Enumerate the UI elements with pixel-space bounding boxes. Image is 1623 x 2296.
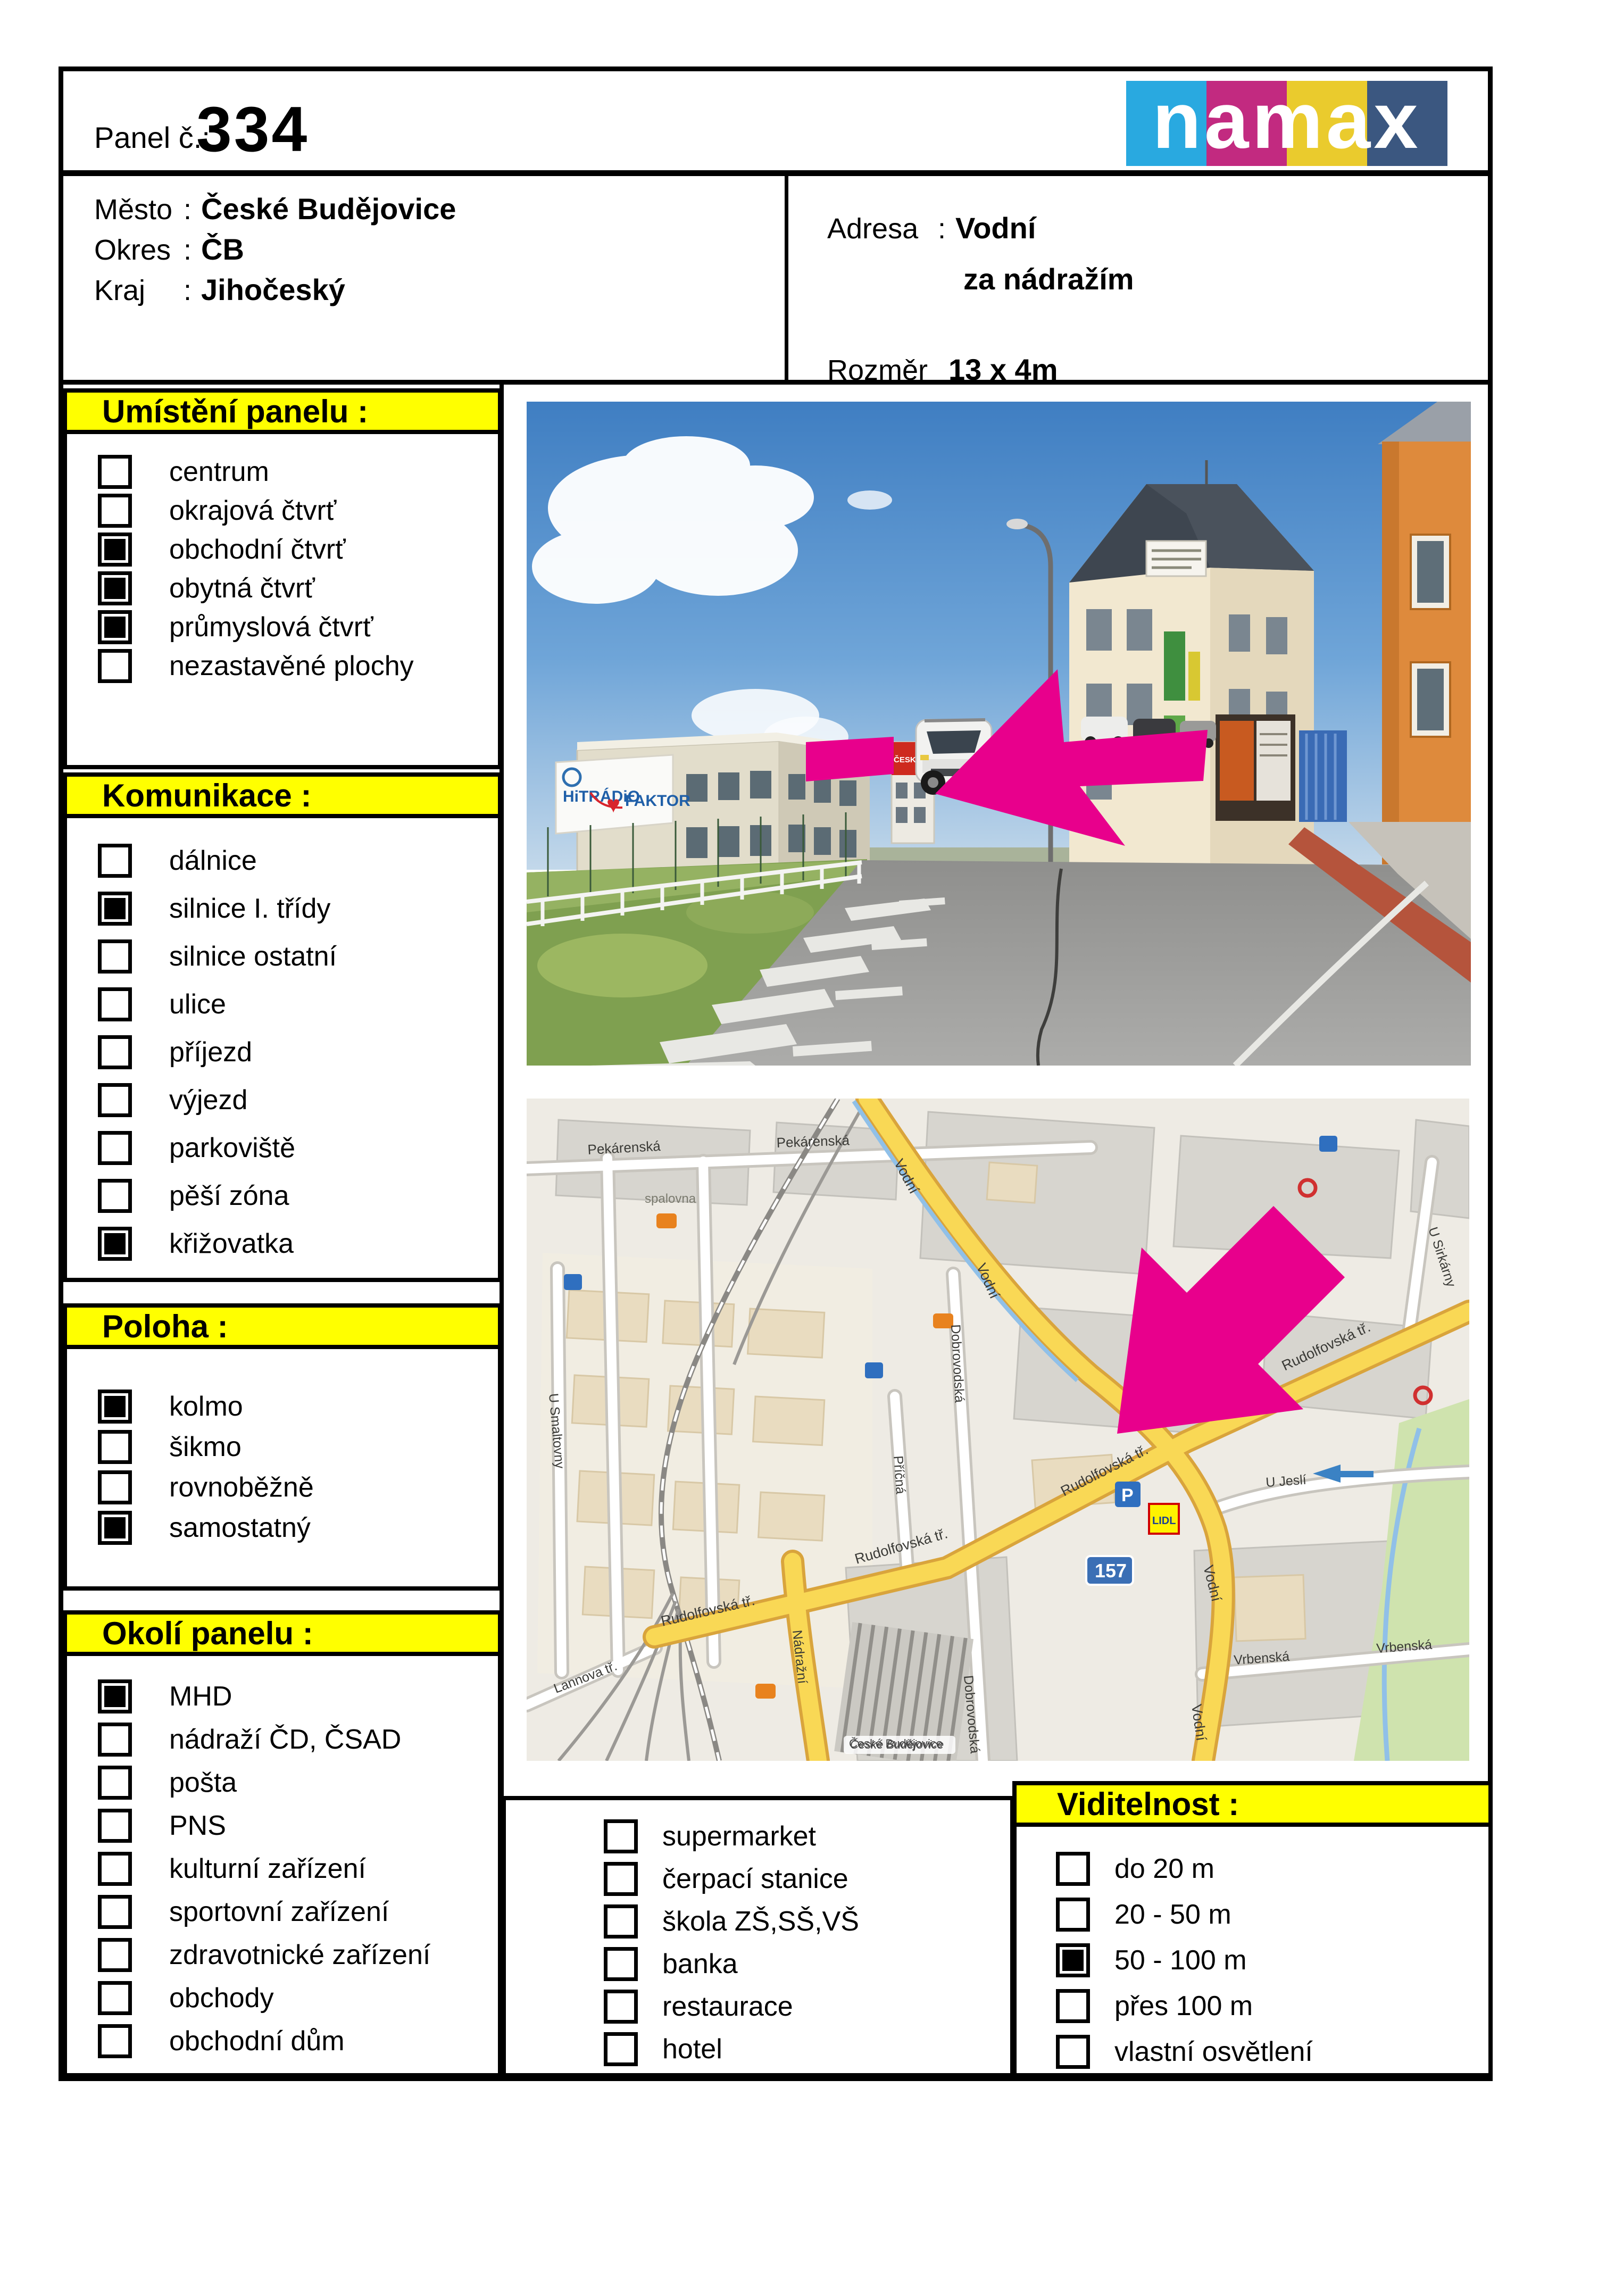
checkbox-label: vlastní osvětlení [1114,2036,1313,2068]
checkbox[interactable] [98,1035,132,1069]
sluzby-list: supermarket čerpací stanice škola ZŠ,SŠ,… [506,1800,1010,2070]
colon: : [938,212,946,245]
checkbox-label: obchody [169,1982,274,2014]
checkbox-row: banka [506,1943,1010,1985]
checkbox[interactable] [98,1895,132,1929]
checkbox-row: silnice I. třídy [67,885,498,933]
checkbox-label: výjezd [169,1084,247,1116]
photo-blue-gate [1299,730,1347,822]
district-row: Okres : ČB [94,232,244,267]
parking-icon-text: P [1121,1485,1134,1505]
address-line1: Vodní [955,211,1036,245]
city-value: České Budějovice [201,192,456,226]
section-komunikace: Komunikace : dálnice silnice I. třídy [63,772,502,1282]
street-lamp-head [1006,519,1028,529]
region-row: Kraj : Jihočeský [94,272,345,307]
checkbox-row: supermarket [506,1815,1010,1858]
checkbox-label: nezastavěné plochy [169,650,414,682]
checkbox-label: silnice I. třídy [169,893,330,925]
checkbox-row: silnice ostatní [67,933,498,980]
house-yellow-banner [1188,652,1200,701]
billboard-highlight [806,737,894,781]
info-divider [63,380,1488,385]
checkbox-label: centrum [169,456,269,488]
checkbox[interactable] [604,1904,638,1939]
checkbox[interactable] [1056,1898,1090,1932]
checkbox-row: 50 - 100 m [1017,1937,1488,1983]
checkbox[interactable] [604,1819,638,1853]
checkbox-row: kolmo [67,1386,498,1427]
checkbox[interactable] [98,844,132,878]
logo-wordmark: namax [1126,80,1447,160]
colon: : [184,274,192,307]
checkbox-label: PNS [169,1810,226,1842]
checkbox-row: kulturní zařízení [67,1847,498,1890]
checkbox-label: dálnice [169,845,257,877]
city-label: Město [94,193,174,226]
checkbox[interactable] [604,1990,638,2024]
checkbox[interactable] [604,1947,638,1981]
checkbox[interactable] [98,1227,132,1261]
map-street-label: spalovna [645,1192,696,1206]
checkbox-row: výjezd [67,1076,498,1124]
checkbox-label: parkoviště [169,1132,295,1164]
checkbox-label: restaurace [662,1991,793,2023]
checkbox-label: sportovní zařízení [169,1896,389,1928]
checkbox-label: hotel [662,2033,722,2065]
checkbox-row: čerpací stanice [506,1858,1010,1900]
region-value: Jihočeský [201,272,345,307]
checkbox-row: restaurace [506,1985,1010,2028]
checkbox[interactable] [98,1809,132,1843]
panel-datasheet: Panel č.: 334 namax Město : České Budějo… [59,66,1493,2081]
checkbox[interactable] [98,2024,132,2058]
checkbox[interactable] [98,1390,132,1424]
poloha-list: kolmo šikmo rovnoběžně samostatn [67,1349,498,1548]
radio-billboard: HiTRÁDiO ♥ FAKTOR [556,755,690,834]
checkbox-label: čerpací stanice [662,1863,848,1895]
section-poloha-title: Poloha : [67,1308,498,1349]
city-row: Město : České Budějovice [94,192,456,226]
checkbox-label: příjezd [169,1036,252,1068]
checkbox-label: ulice [169,988,226,1020]
checkbox[interactable] [98,610,132,644]
checkbox-row: MHD [67,1675,498,1718]
checkbox[interactable] [604,2032,638,2066]
checkbox[interactable] [98,1511,132,1545]
region-label: Kraj [94,274,174,307]
panel-number-value: 334 [196,93,309,166]
checkbox-row: okrajová čtvrť [67,491,498,530]
checkbox-row: nádraží ČD, ČSAD [67,1718,498,1761]
checkbox-label: obchodní dům [169,2025,345,2057]
checkbox-row: šikmo [67,1427,498,1467]
checkbox[interactable] [98,455,132,489]
section-umisteni: Umístění panelu : centrum okrajová čtvrť [63,388,502,769]
komunikace-list: dálnice silnice I. třídy silnice ostatní [67,818,498,1268]
colon: : [184,234,192,267]
scanned-form: Panel č.: 334 namax Město : České Budějo… [0,0,1623,2296]
checkbox[interactable] [98,1723,132,1757]
checkbox-row: parkoviště [67,1124,498,1172]
checkbox-label: nádraží ČD, ČSAD [169,1724,401,1756]
checkbox-label: 50 - 100 m [1114,1944,1247,1976]
checkbox-label: škola ZŠ,SŠ,VŠ [662,1906,859,1937]
checkbox-label: kolmo [169,1391,243,1422]
checkbox-row: obchodní čtvrť [67,530,498,569]
checkbox[interactable] [98,1679,132,1713]
checkbox-label: banka [662,1948,738,1980]
checkbox[interactable] [1056,1989,1090,2023]
checkbox-row: PNS [67,1804,498,1847]
checkbox-row: sportovní zařízení [67,1890,498,1933]
checkbox[interactable] [604,1862,638,1896]
checkbox[interactable] [1056,1943,1090,1977]
map-street-label: Příčná [890,1455,908,1494]
checkbox-label: supermarket [662,1820,816,1852]
checkbox-row: nezastavěné plochy [67,646,498,685]
checkbox-row: 20 - 50 m [1017,1892,1488,1937]
checkbox[interactable] [98,1766,132,1800]
house-green-banner [1164,631,1185,701]
route-shield-text: 157 [1095,1560,1127,1582]
checkbox-label: pěší zóna [169,1180,289,1212]
checkbox-row: ulice [67,980,498,1028]
checkbox-row: do 20 m [1017,1846,1488,1892]
checkbox[interactable] [98,939,132,974]
district-label: Okres [94,234,174,267]
checkbox-row: křižovatka [67,1220,498,1268]
station-label: České Budějovice [850,1738,944,1751]
checkbox-label: pošta [169,1767,237,1799]
checkbox-label: přes 100 m [1114,1990,1253,2022]
section-poloha: Poloha : kolmo šikmo rovnoběž [63,1303,502,1591]
checkbox-label: samostatný [169,1512,311,1544]
header-divider [63,170,1488,176]
checkbox[interactable] [98,987,132,1021]
address-line2: za nádražím [963,262,1134,296]
checkbox-row: přes 100 m [1017,1983,1488,2029]
district-value: ČB [201,232,244,267]
section-sluzby: supermarket čerpací stanice škola ZŠ,SŠ,… [502,1796,1014,2077]
location-map: 157 P LIDL [527,1099,1469,1761]
checkbox[interactable] [98,1470,132,1504]
checkbox-label: průmyslová čtvrť [169,611,373,643]
checkbox-row: pěší zóna [67,1172,498,1220]
map-parking-icon: P [1115,1482,1141,1507]
map-street-label: Pekárenská [776,1132,850,1151]
checkbox-row: škola ZŠ,SŠ,VŠ [506,1900,1010,1943]
checkbox[interactable] [98,1083,132,1117]
checkbox[interactable] [98,649,132,683]
okoli-list: MHD nádraží ČD, ČSAD pošta PNS [67,1656,498,2062]
checkbox-label: obytná čtvrť [169,572,315,604]
checkbox-label: rovnoběžně [169,1471,314,1503]
checkbox-row: obchody [67,1976,498,2019]
address-label: Adresa [827,212,928,245]
section-viditelnost: Viditelnost : do 20 m 20 - 50 m [1012,1781,1493,2077]
checkbox-row: zdravotnické zařízení [67,1933,498,1976]
section-komunikace-title: Komunikace : [67,777,498,818]
section-okoli-title: Okolí panelu : [67,1615,498,1656]
checkbox-label: silnice ostatní [169,941,337,972]
viditelnost-list: do 20 m 20 - 50 m 50 - 100 m pře [1017,1827,1488,2075]
map-route-shield: 157 [1086,1556,1133,1585]
checkbox-row: dálnice [67,837,498,885]
checkbox-row: hotel [506,2028,1010,2070]
checkbox-label: kulturní zařízení [169,1853,366,1885]
checkbox-row: příjezd [67,1028,498,1076]
checkbox-row: průmyslová čtvrť [67,608,498,646]
checkbox[interactable] [1056,1852,1090,1886]
checkbox[interactable] [98,1131,132,1165]
checkbox-row: samostatný [67,1508,498,1548]
section-okoli: Okolí panelu : MHD nádraží ČD, ČSAD [63,1610,502,2077]
checkbox[interactable] [98,571,132,605]
checkbox-label: šikmo [169,1431,242,1463]
checkbox[interactable] [98,892,132,926]
checkbox-label: obchodní čtvrť [169,534,346,565]
checkbox[interactable] [98,1179,132,1213]
photo-house-orange [1378,402,1471,864]
checkbox[interactable] [98,1852,132,1886]
lidl-icon-text: LIDL [1152,1515,1176,1527]
checkbox[interactable] [1056,2035,1090,2069]
photo-dark-billboard [1216,714,1295,821]
panel-number-label: Panel č.: [94,120,210,155]
checkbox-label: MHD [169,1681,232,1712]
umisteni-list: centrum okrajová čtvrť obchodní čtvrť [67,434,498,685]
location-photo: HiTRÁDiO ♥ FAKTOR ČESKÉSTAVBY.cz [527,402,1471,1066]
checkbox-label: 20 - 50 m [1114,1899,1231,1931]
checkbox[interactable] [98,533,132,567]
checkbox-row: obytná čtvrť [67,569,498,608]
map-lidl-icon: LIDL [1149,1504,1179,1534]
checkbox-row: vlastní osvětlení [1017,2029,1488,2075]
map-street-label: U Jeslí [1265,1473,1306,1490]
checkbox-row: obchodní dům [67,2019,498,2062]
checkbox[interactable] [98,1981,132,2015]
info-cell-divider [785,176,788,380]
checkbox[interactable] [98,1938,132,1972]
checkbox-label: křižovatka [169,1228,294,1260]
checkbox[interactable] [98,1430,132,1464]
address-row: Adresa : Vodní [827,211,1036,245]
radio-sign-line2: FAKTOR [625,792,690,810]
checkbox-label: okrajová čtvrť [169,495,336,527]
colon: : [184,193,192,226]
radio-sign-heart: ♥ [606,792,620,818]
section-umisteni-title: Umístění panelu : [67,393,498,434]
checkbox[interactable] [98,494,132,528]
checkbox-row: centrum [67,452,498,491]
checkbox-label: do 20 m [1114,1853,1214,1885]
checkbox-label: zdravotnické zařízení [169,1939,430,1971]
namax-logo: namax [1126,81,1447,166]
checkbox-row: rovnoběžně [67,1467,498,1508]
checkbox-row: pošta [67,1761,498,1804]
section-viditelnost-title: Viditelnost : [1017,1785,1488,1827]
